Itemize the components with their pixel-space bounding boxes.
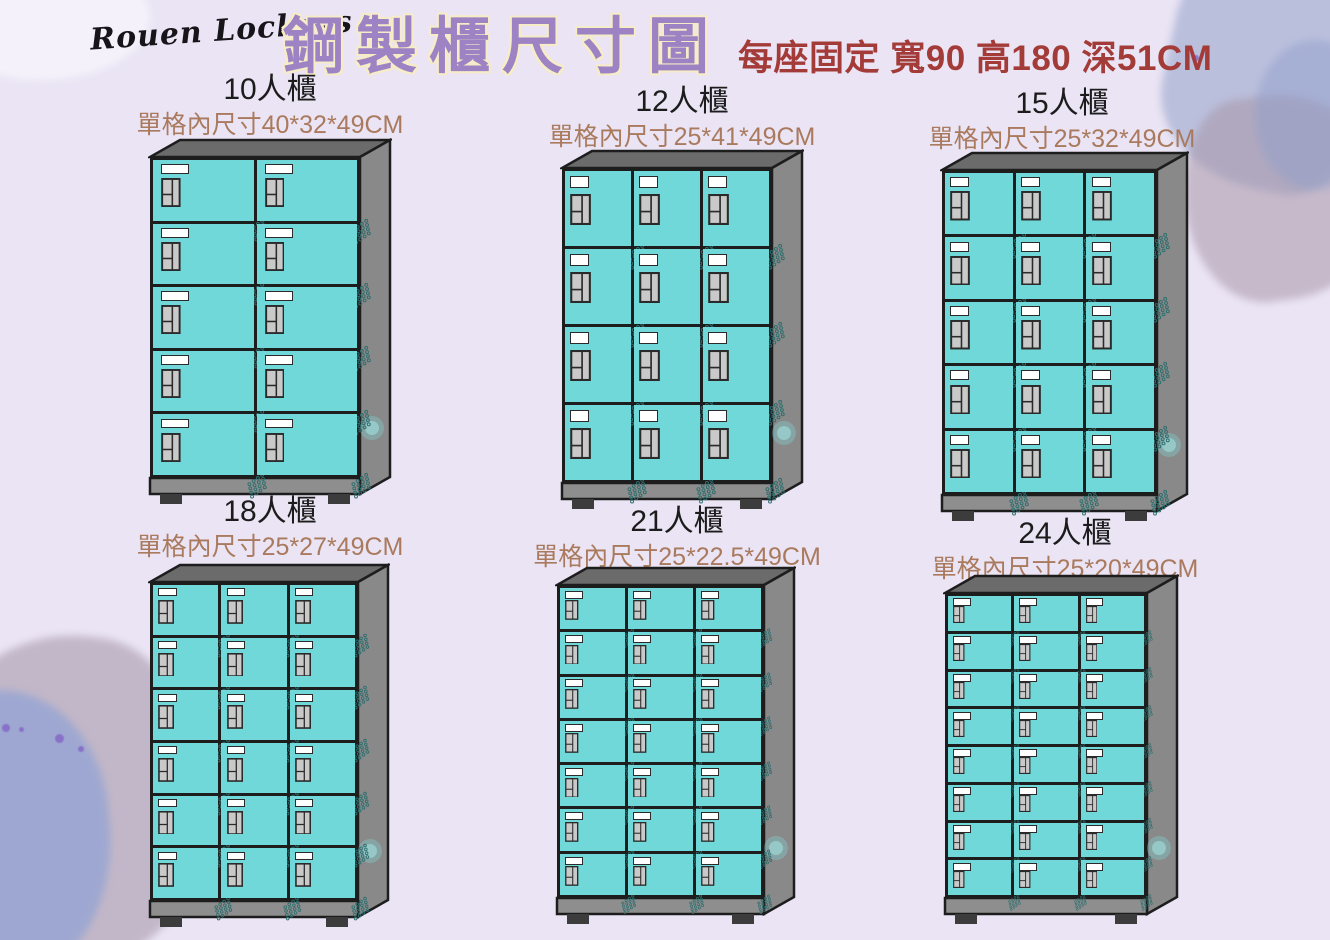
locker-door	[696, 765, 761, 806]
locker-door	[257, 287, 358, 348]
locker-inner-dimensions: 單格內尺寸40*32*49CM	[120, 110, 420, 140]
locker-door	[221, 638, 286, 688]
locker-door	[628, 809, 693, 850]
locker-door	[1086, 431, 1154, 492]
name-tag	[227, 852, 245, 860]
name-tag	[953, 674, 971, 682]
name-tag	[565, 768, 583, 776]
locker-door	[560, 765, 625, 806]
locker-door	[290, 585, 355, 635]
locker-label: 18人櫃	[120, 494, 420, 530]
door-grid	[557, 585, 764, 898]
locker-label: 15人櫃	[912, 86, 1212, 122]
name-tag	[708, 332, 726, 344]
locker-door	[221, 690, 286, 740]
name-tag	[158, 799, 176, 807]
name-tag	[1086, 636, 1104, 644]
locker-door	[221, 585, 286, 635]
name-tag	[953, 825, 971, 833]
locker-door	[696, 854, 761, 895]
locker-door	[565, 249, 631, 324]
name-tag	[701, 724, 719, 732]
locker-door	[1086, 173, 1154, 234]
locker-door	[628, 677, 693, 718]
locker-door	[153, 287, 254, 348]
locker-door	[560, 632, 625, 673]
locker-unit-15: 15人櫃單格內尺寸25*32*49CM	[912, 86, 1212, 527]
name-tag	[701, 635, 719, 643]
name-tag	[227, 694, 245, 702]
name-tag	[295, 746, 313, 754]
locker-door	[1081, 596, 1144, 631]
name-tag	[1019, 787, 1037, 795]
locker-door	[1081, 634, 1144, 669]
locker-door	[1014, 596, 1077, 631]
name-tag	[158, 746, 176, 754]
locker-cabinet	[148, 138, 392, 506]
locker-door	[560, 588, 625, 629]
fixed-dimensions-note: 每座固定 寬90 高180 深51CM	[738, 30, 1212, 81]
name-tag	[565, 635, 583, 643]
name-tag	[1019, 863, 1037, 871]
name-tag	[570, 176, 588, 188]
locker-door	[1014, 672, 1077, 707]
locker-cabinet	[555, 566, 796, 926]
locker-door	[290, 743, 355, 793]
name-tag	[639, 254, 657, 266]
name-tag	[1019, 674, 1037, 682]
name-tag	[1092, 177, 1111, 187]
locker-door	[948, 672, 1011, 707]
name-tag	[570, 410, 588, 422]
name-tag	[295, 588, 313, 596]
locker-door	[1081, 747, 1144, 782]
locker-door	[1081, 823, 1144, 858]
locker-door	[1014, 634, 1077, 669]
locker-door	[1081, 785, 1144, 820]
locker-door	[1081, 860, 1144, 895]
name-tag	[158, 852, 176, 860]
locker-door	[703, 171, 769, 246]
locker-door	[945, 302, 1013, 363]
locker-cabinet	[943, 574, 1179, 926]
paint-dot	[55, 734, 64, 743]
name-tag	[158, 588, 176, 596]
door-grid	[150, 582, 358, 901]
name-tag	[158, 694, 176, 702]
locker-label: 24人櫃	[915, 516, 1215, 552]
locker-door	[1016, 237, 1084, 298]
name-tag	[1021, 306, 1040, 316]
name-tag	[1019, 825, 1037, 833]
locker-door	[703, 327, 769, 402]
locker-door	[696, 632, 761, 673]
locker-door	[153, 638, 218, 688]
locker-door	[696, 677, 761, 718]
name-tag	[1086, 712, 1104, 720]
name-tag	[565, 591, 583, 599]
locker-door	[290, 690, 355, 740]
name-tag	[1086, 674, 1104, 682]
locker-door	[257, 224, 358, 285]
name-tag	[1086, 749, 1104, 757]
locker-cabinet	[148, 563, 390, 929]
name-tag	[265, 164, 293, 174]
locker-unit-18: 18人櫃單格內尺寸25*27*49CM	[120, 494, 420, 933]
name-tag	[633, 768, 651, 776]
locker-door	[945, 431, 1013, 492]
locker-door	[153, 796, 218, 846]
locker-door	[945, 173, 1013, 234]
name-tag	[161, 164, 189, 174]
name-tag	[950, 177, 969, 187]
locker-door	[560, 809, 625, 850]
name-tag	[1019, 712, 1037, 720]
name-tag	[161, 228, 189, 238]
locker-door	[1014, 709, 1077, 744]
name-tag	[295, 694, 313, 702]
locker-door	[1014, 823, 1077, 858]
name-tag	[950, 435, 969, 445]
name-tag	[1021, 435, 1040, 445]
name-tag	[953, 712, 971, 720]
name-tag	[1019, 636, 1037, 644]
name-tag	[633, 724, 651, 732]
name-tag	[565, 679, 583, 687]
name-tag	[953, 749, 971, 757]
locker-door	[560, 677, 625, 718]
name-tag	[227, 799, 245, 807]
name-tag	[953, 787, 971, 795]
locker-door	[565, 405, 631, 480]
locker-door	[703, 249, 769, 324]
locker-door	[628, 854, 693, 895]
name-tag	[701, 857, 719, 865]
name-tag	[1086, 598, 1104, 606]
locker-door	[257, 414, 358, 475]
name-tag	[161, 291, 189, 301]
name-tag	[158, 641, 176, 649]
locker-door	[153, 848, 218, 898]
locker-door	[1016, 431, 1084, 492]
locker-door	[703, 405, 769, 480]
name-tag	[565, 724, 583, 732]
name-tag	[227, 641, 245, 649]
name-tag	[708, 254, 726, 266]
name-tag	[161, 419, 189, 429]
name-tag	[1021, 242, 1040, 252]
locker-door	[153, 224, 254, 285]
locker-inner-dimensions: 單格內尺寸25*32*49CM	[912, 124, 1212, 154]
locker-door	[1086, 237, 1154, 298]
door-grid	[562, 168, 772, 483]
name-tag	[701, 591, 719, 599]
name-tag	[295, 852, 313, 860]
door-grid	[150, 157, 360, 478]
name-tag	[265, 355, 293, 365]
locker-door	[560, 721, 625, 762]
door-grid	[942, 170, 1157, 495]
name-tag	[633, 679, 651, 687]
locker-door	[1081, 709, 1144, 744]
name-tag	[950, 242, 969, 252]
locker-unit-10: 10人櫃單格內尺寸40*32*49CM	[120, 72, 420, 510]
locker-door	[565, 171, 631, 246]
locker-door	[628, 765, 693, 806]
name-tag	[1021, 177, 1040, 187]
locker-door	[153, 743, 218, 793]
name-tag	[701, 679, 719, 687]
name-tag	[950, 306, 969, 316]
locker-unit-24: 24人櫃單格內尺寸25*20*49CM	[915, 516, 1215, 930]
locker-cabinet	[560, 149, 804, 511]
locker-door	[257, 351, 358, 412]
poster: Rouen Lockers 鋼製櫃尺寸圖 每座固定 寬90 高180 深51CM…	[0, 0, 1330, 940]
name-tag	[708, 176, 726, 188]
name-tag	[570, 332, 588, 344]
name-tag	[1021, 370, 1040, 380]
locker-door	[628, 721, 693, 762]
name-tag	[1092, 242, 1111, 252]
name-tag	[295, 641, 313, 649]
locker-door	[696, 588, 761, 629]
name-tag	[1092, 370, 1111, 380]
name-tag	[1086, 787, 1104, 795]
name-tag	[227, 746, 245, 754]
locker-door	[696, 809, 761, 850]
locker-door	[290, 638, 355, 688]
locker-door	[945, 366, 1013, 427]
name-tag	[701, 812, 719, 820]
locker-door	[221, 796, 286, 846]
locker-door	[1016, 366, 1084, 427]
locker-door	[628, 588, 693, 629]
locker-door	[1016, 173, 1084, 234]
locker-door	[1081, 672, 1144, 707]
name-tag	[633, 812, 651, 820]
locker-door	[634, 249, 700, 324]
name-tag	[161, 355, 189, 365]
locker-door	[153, 690, 218, 740]
name-tag	[570, 254, 588, 266]
name-tag	[953, 863, 971, 871]
locker-door	[257, 160, 358, 221]
locker-door	[1086, 302, 1154, 363]
locker-door	[1086, 366, 1154, 427]
locker-door	[948, 823, 1011, 858]
locker-door	[696, 721, 761, 762]
locker-door	[565, 327, 631, 402]
locker-door	[560, 854, 625, 895]
locker-label: 12人櫃	[532, 84, 832, 120]
locker-inner-dimensions: 單格內尺寸25*41*49CM	[532, 122, 832, 152]
locker-label: 21人櫃	[527, 504, 827, 540]
name-tag	[265, 228, 293, 238]
name-tag	[565, 857, 583, 865]
locker-door	[948, 860, 1011, 895]
locker-door	[948, 634, 1011, 669]
locker-door	[948, 596, 1011, 631]
door-grid	[945, 593, 1147, 898]
locker-door	[153, 414, 254, 475]
locker-unit-21: 21人櫃單格內尺寸25*22.5*49CM	[527, 504, 827, 930]
name-tag	[1086, 825, 1104, 833]
name-tag	[639, 176, 657, 188]
locker-door	[221, 743, 286, 793]
locker-door	[153, 585, 218, 635]
name-tag	[227, 588, 245, 596]
name-tag	[639, 410, 657, 422]
locker-door	[290, 796, 355, 846]
name-tag	[950, 370, 969, 380]
locker-door	[1016, 302, 1084, 363]
name-tag	[633, 591, 651, 599]
name-tag	[565, 812, 583, 820]
locker-door	[1014, 860, 1077, 895]
locker-inner-dimensions: 單格內尺寸25*27*49CM	[120, 532, 420, 562]
locker-door	[948, 747, 1011, 782]
name-tag	[953, 598, 971, 606]
name-tag	[1019, 749, 1037, 757]
locker-door	[153, 351, 254, 412]
name-tag	[1086, 863, 1104, 871]
locker-door	[634, 327, 700, 402]
locker-door	[634, 171, 700, 246]
locker-unit-12: 12人櫃單格內尺寸25*41*49CM	[532, 84, 832, 515]
locker-door	[290, 848, 355, 898]
name-tag	[953, 636, 971, 644]
name-tag	[633, 635, 651, 643]
name-tag	[633, 857, 651, 865]
name-tag	[295, 799, 313, 807]
locker-cabinet	[940, 151, 1189, 523]
locker-door	[634, 405, 700, 480]
name-tag	[639, 332, 657, 344]
name-tag	[1019, 598, 1037, 606]
locker-door	[1014, 747, 1077, 782]
locker-door	[153, 160, 254, 221]
locker-door	[948, 709, 1011, 744]
locker-label: 10人櫃	[120, 72, 420, 108]
name-tag	[1092, 435, 1111, 445]
locker-door	[221, 848, 286, 898]
paint-dot	[78, 746, 84, 752]
paint-dot	[19, 727, 24, 732]
name-tag	[265, 419, 293, 429]
name-tag	[701, 768, 719, 776]
name-tag	[265, 291, 293, 301]
locker-door	[945, 237, 1013, 298]
locker-door	[628, 632, 693, 673]
locker-door	[1014, 785, 1077, 820]
locker-door	[948, 785, 1011, 820]
paint-dot	[2, 724, 10, 732]
name-tag	[1092, 306, 1111, 316]
name-tag	[708, 410, 726, 422]
